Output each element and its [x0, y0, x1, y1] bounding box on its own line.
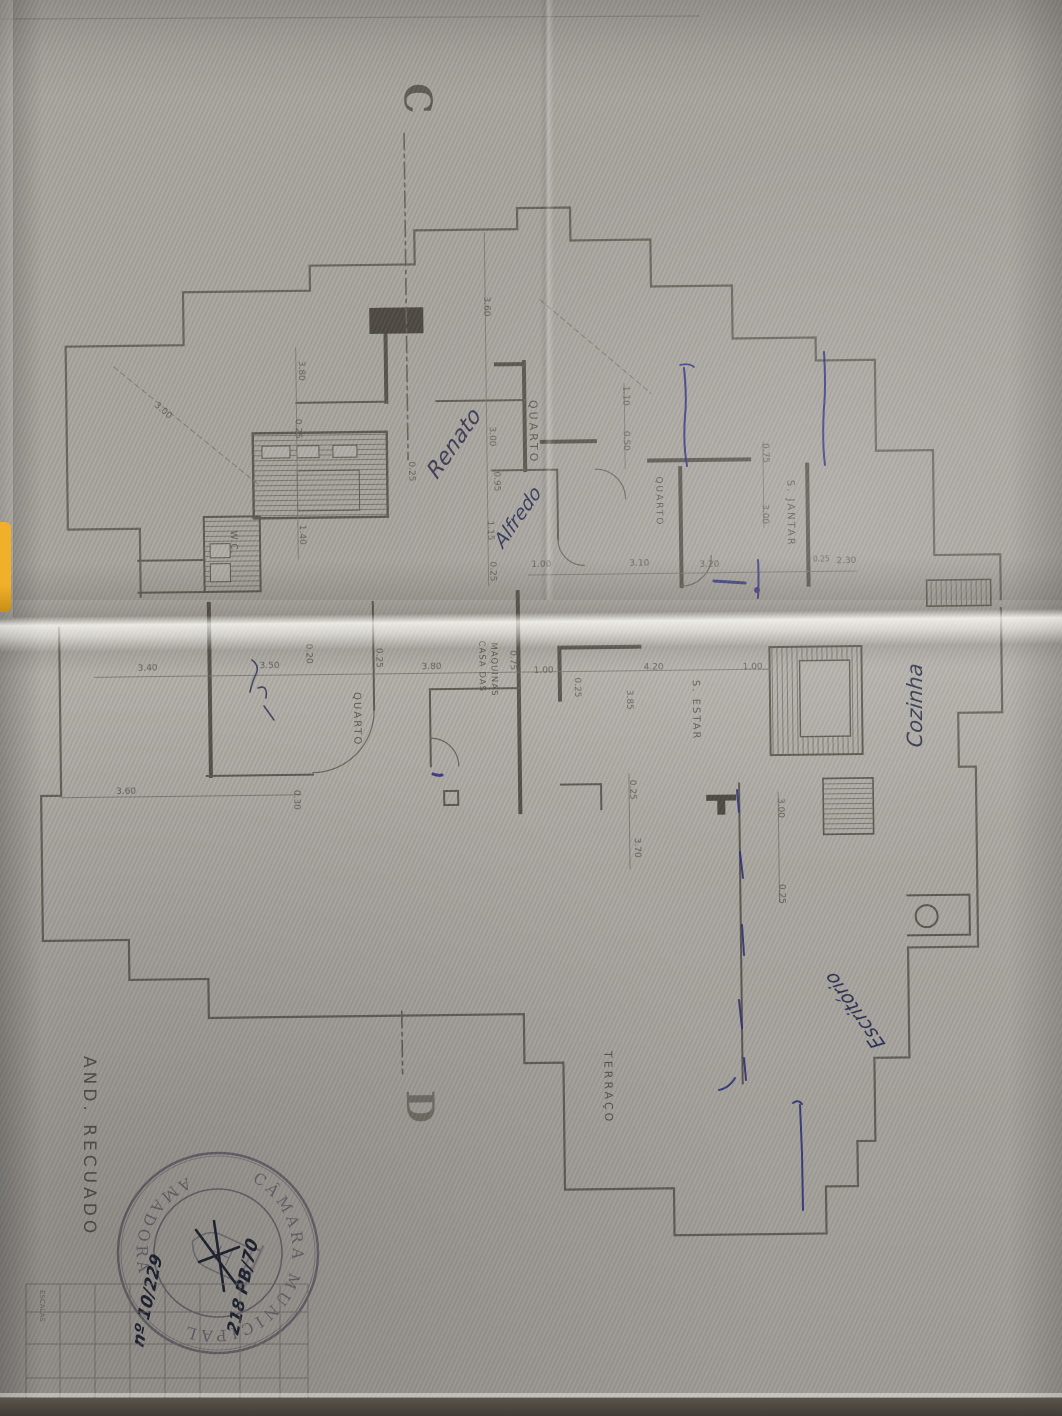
room-label: MAQUINAS: [488, 642, 499, 696]
dimension-label: 3.70: [632, 838, 642, 858]
dimension-label: 1.00: [743, 662, 763, 672]
dimension-label: 0.95: [491, 471, 501, 491]
section-marker-d: D: [398, 1090, 443, 1124]
dimension-label: 0.50: [621, 431, 631, 451]
dimension-label: 1.40: [297, 525, 307, 545]
dimension-label: 3.50: [259, 661, 279, 671]
dimension-label: 1.00: [534, 666, 554, 676]
dimension-label: 0.25: [813, 554, 830, 563]
section-marker-c: C: [395, 83, 440, 114]
floor-plan-svg: C D QUARTO QUARTO S. JANTAR W.C. QUARTO …: [0, 0, 1062, 1416]
dimension-label: 3.40: [138, 664, 158, 674]
plan-title: AND. RECUADO: [79, 1056, 99, 1237]
dimension-label: 0.25: [373, 648, 383, 668]
room-label: S. JANTAR: [784, 480, 796, 547]
dimension-label: 1.00: [531, 560, 551, 570]
dimension-label: 0.25: [572, 677, 582, 697]
photo-of-floor-plan: C D QUARTO QUARTO S. JANTAR W.C. QUARTO …: [0, 0, 1062, 1416]
dimension-label: 3.00: [487, 426, 497, 446]
dimension-label: 1.10: [620, 386, 630, 406]
dimension-label: 0.30: [291, 790, 301, 810]
room-label: CASA DAS: [476, 641, 487, 693]
dimension-label: 3.20: [699, 560, 719, 570]
dimension-label: 3.80: [296, 361, 306, 381]
dimension-label: 2.30: [836, 556, 856, 566]
dimension-label: 3.10: [629, 559, 649, 569]
room-label: QUARTO: [351, 692, 363, 746]
room-label: TERRAÇO: [601, 1050, 615, 1124]
yellow-object-at-edge: [0, 522, 11, 612]
dimension-label: 0.20: [303, 644, 313, 664]
dimension-label: 0.25: [487, 561, 497, 581]
room-label: QUARTO: [653, 476, 664, 526]
dimension-label: 3.60: [481, 296, 491, 316]
table-background: [0, 1398, 1062, 1416]
dimension-label: 3.00: [775, 798, 785, 818]
room-label: W.C.: [228, 531, 238, 555]
dimension-label: 0.75: [760, 443, 770, 463]
dimension-label: 3.80: [422, 662, 442, 672]
counter-block-bottom: [769, 646, 862, 755]
dimension-label: 0.75: [507, 650, 517, 670]
room-label: QUARTO: [526, 400, 540, 465]
dimension-label: 3.00: [760, 504, 770, 524]
dimension-label: 4.20: [644, 662, 664, 672]
dimension-label: 0.25: [776, 884, 786, 904]
handwriting-cozinha: Cozinha: [902, 662, 927, 748]
title-block-col-label: ESCALAS: [38, 1290, 46, 1322]
dimension-label: 3.85: [624, 690, 634, 710]
dimension-label: 3.60: [116, 787, 136, 797]
kitchen-block: [253, 432, 388, 519]
dimension-label: 0.25: [627, 780, 637, 800]
dimension-label: 0.25: [406, 461, 416, 481]
dimension-label: 0.25: [293, 419, 303, 439]
room-label: S. ESTAR: [690, 680, 702, 741]
paper-bottom-edge: [0, 1393, 1062, 1397]
